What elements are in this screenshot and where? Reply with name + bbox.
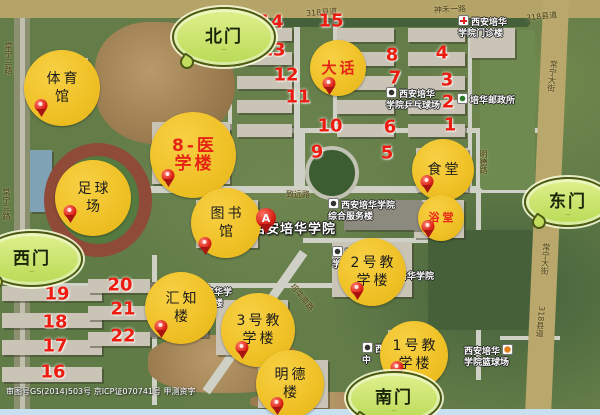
poi-marker-label: 足球 [78, 180, 112, 198]
gate-label: 北门 [205, 22, 243, 47]
ball-icon [502, 344, 513, 355]
map-copyright: 审图号GS(2014)503号 京ICP证070741号 甲测资字 [6, 386, 196, 397]
building-number-2[interactable]: 2 [442, 92, 455, 113]
building-number-12[interactable]: 12 [273, 65, 298, 86]
poi-marker-label: 馆 [55, 88, 72, 106]
road-label: 318县道 [534, 306, 547, 338]
poi-marker-label: 图书 [211, 205, 245, 223]
campus-satellite-map[interactable]: 审图号GS(2014)503号 京ICP证070741号 甲测资字 318县道神… [0, 0, 600, 415]
building-number-9[interactable]: 9 [311, 142, 324, 163]
gate-script-decoration: ~ [565, 212, 572, 218]
road-label: 常宁三路 [3, 42, 14, 74]
place-label-text: 西安培华 [464, 347, 500, 357]
building-number-21[interactable]: 21 [110, 299, 135, 320]
cross-icon [458, 15, 469, 26]
poi-marker-label: 2号教 [351, 254, 397, 272]
location-pin-icon[interactable] [422, 220, 435, 233]
building-number-19[interactable]: 19 [44, 284, 69, 305]
poi-marker-teaching-building-2[interactable]: 2号教学楼 [338, 238, 406, 306]
main-place-pin-icon[interactable]: A [256, 208, 276, 228]
place-label-service-building[interactable]: 西安培华学院综合服务楼 [328, 198, 395, 223]
building-number-20[interactable]: 20 [107, 275, 132, 296]
place-label-pingpong-court[interactable]: 西安培华学院乒乓球场 [386, 87, 440, 112]
building-number-22[interactable]: 22 [110, 326, 135, 347]
place-label-text: 西安培华 [399, 90, 435, 100]
poi-marker-label: 8-医 [172, 137, 217, 155]
dot-icon [328, 198, 339, 209]
building-number-17[interactable]: 17 [42, 336, 67, 357]
poi-marker-label: 1号教 [393, 337, 439, 355]
location-pin-icon[interactable] [155, 320, 168, 333]
poi-marker-label: 明德 [275, 366, 309, 384]
gate-label: 西门 [13, 244, 51, 269]
location-pin-icon[interactable] [323, 77, 336, 90]
place-label-text: 西安培华 [471, 18, 507, 28]
building-number-5[interactable]: 5 [381, 143, 394, 164]
county-road-318 [0, 0, 600, 18]
poi-marker-label: 学楼 [399, 355, 433, 373]
gate-script-decoration: ~ [391, 408, 398, 414]
poi-marker-dahua[interactable]: 大话 [310, 40, 366, 96]
location-pin-icon[interactable] [162, 169, 175, 182]
building-number-11[interactable]: 11 [285, 87, 310, 108]
poi-marker-label: 体育 [47, 70, 81, 88]
location-pin-icon[interactable] [199, 237, 212, 250]
place-label-text: 西安培华学院 [341, 201, 395, 211]
poi-marker-label: 馆 [219, 223, 236, 241]
campus-road [300, 128, 305, 190]
location-pin-icon[interactable] [271, 397, 284, 410]
poi-marker-label: 大话 [321, 59, 357, 77]
building-block [408, 28, 465, 42]
place-label-text: 学院乒乓球场 [386, 101, 440, 111]
building-number-4[interactable]: 4 [436, 43, 449, 64]
poi-marker-label: 3号教 [237, 312, 283, 330]
location-pin-icon[interactable] [35, 99, 48, 112]
poi-marker-label: 学楼 [175, 155, 215, 173]
poi-marker-label: 食堂 [428, 161, 462, 179]
building-number-8[interactable]: 8 [386, 45, 399, 66]
building-number-3[interactable]: 3 [441, 70, 454, 91]
building-number-6[interactable]: 6 [384, 117, 397, 138]
road-label: 致远路 [286, 189, 310, 200]
building-number-10[interactable]: 10 [317, 116, 342, 137]
gate-label: 东门 [549, 187, 587, 212]
road-label: 明德路 [478, 150, 489, 174]
road-label: 常宁大街 [539, 243, 552, 276]
poi-marker-label: 楼 [283, 384, 300, 402]
gate-label: 南门 [375, 383, 413, 408]
road-label: 神禾一路 [434, 3, 467, 16]
location-pin-icon[interactable] [421, 175, 434, 188]
post-icon [457, 93, 468, 104]
dot-icon [386, 87, 397, 98]
place-label-text: 学院篮球场 [464, 358, 509, 368]
gate-north[interactable]: 北门~ [172, 7, 276, 67]
building-block [237, 124, 292, 137]
building-number-15[interactable]: 15 [318, 11, 343, 32]
gate-east[interactable]: 东门~ [524, 177, 600, 227]
place-label-text: 培华邮政所 [470, 96, 515, 106]
poi-marker-label: 楼 [174, 308, 191, 326]
building-number-1[interactable]: 1 [444, 115, 457, 136]
gate-script-decoration: ~ [221, 47, 228, 53]
dot-icon [362, 342, 373, 353]
poi-marker-label: 汇知 [166, 290, 200, 308]
location-pin-icon[interactable] [64, 205, 77, 218]
building-block [237, 100, 292, 113]
place-label-clinic[interactable]: 西安培华学院门诊楼 [458, 15, 507, 40]
location-pin-icon[interactable] [351, 282, 364, 295]
place-label-text: 学院门诊楼 [458, 29, 503, 39]
place-label-post-office[interactable]: 培华邮政所 [457, 93, 515, 107]
building-number-16[interactable]: 16 [40, 362, 65, 383]
building-number-7[interactable]: 7 [389, 68, 402, 89]
poi-marker-label: 场 [86, 198, 103, 216]
place-label-text: 中 [362, 356, 371, 366]
building-number-18[interactable]: 18 [42, 312, 67, 333]
poi-marker-mingde-building[interactable]: 明德楼 [256, 350, 324, 415]
gate-script-decoration: ~ [29, 269, 36, 275]
road-label: 常宁三路 [1, 188, 12, 220]
place-label-basketball-court[interactable]: 西安培华学院篮球场 [464, 344, 515, 369]
location-pin-icon[interactable] [236, 341, 249, 354]
building-block [337, 28, 394, 42]
tree-area [428, 230, 533, 330]
